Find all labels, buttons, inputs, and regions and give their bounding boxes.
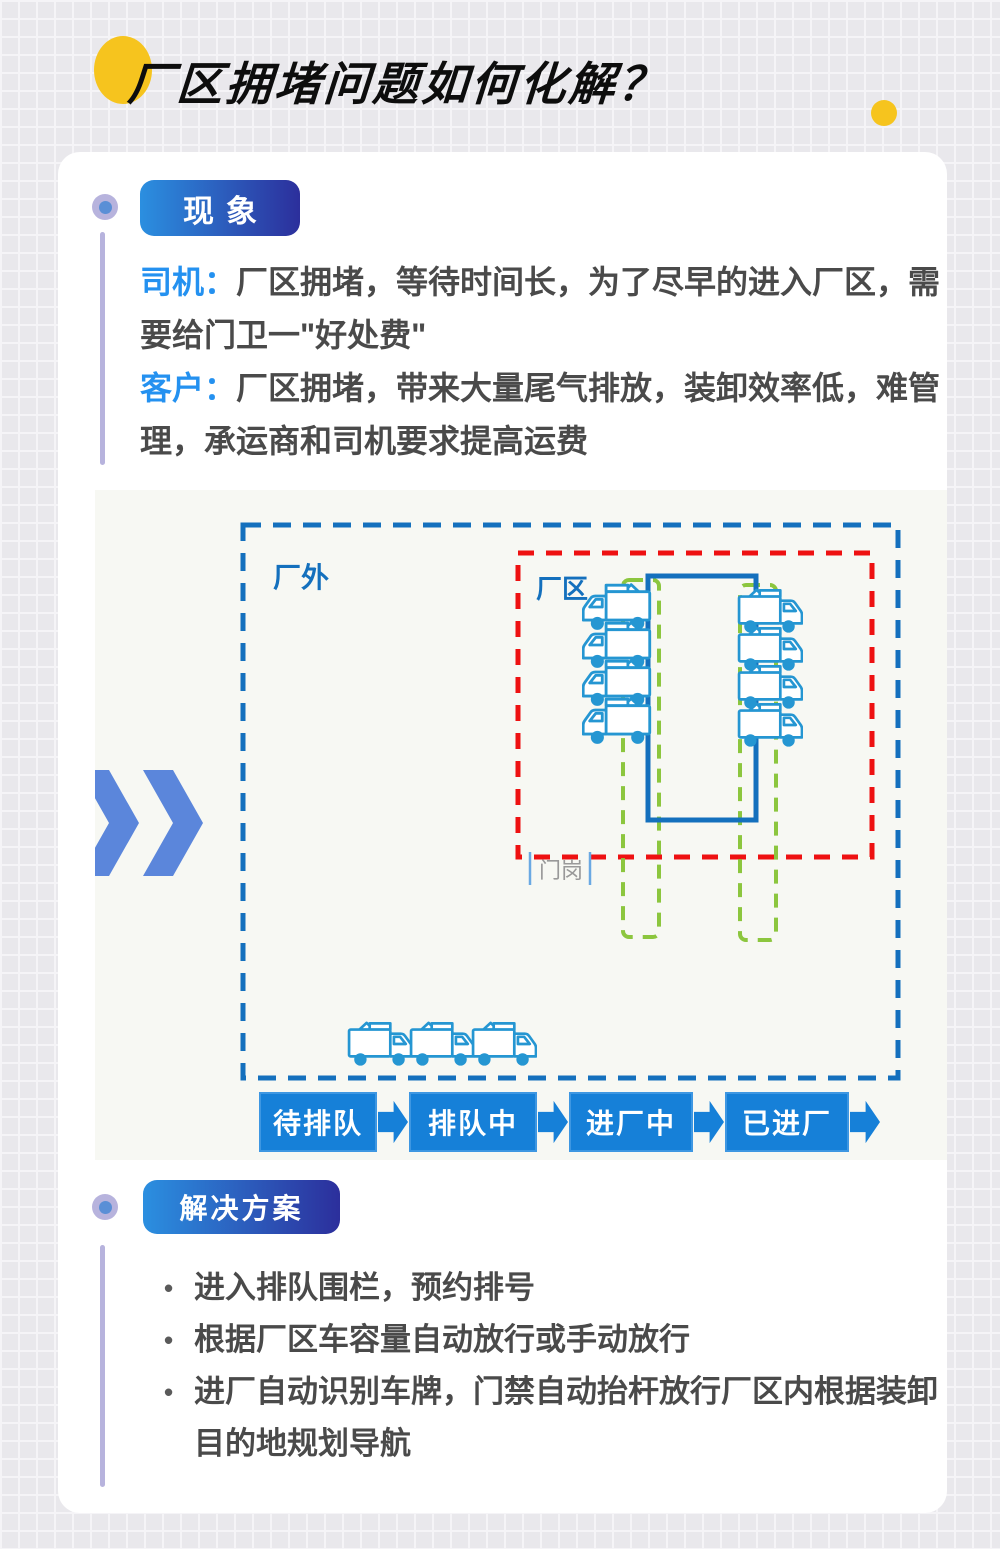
queue-status-flow: 待排队 排队中 进厂中 已进厂 (259, 1092, 881, 1152)
solution-item: 进厂自动识别车牌，门禁自动抬杆放行厂区内根据装卸目的地规划导航 (158, 1366, 938, 1470)
phenomenon-text: 司机：厂区拥堵，等待时间长，为了尽早的进入厂区，需要给门卫一"好处费" 客户：厂… (140, 256, 946, 468)
section-line (100, 232, 105, 465)
customer-label: 客户： (140, 370, 236, 406)
section-bullet-marker (92, 1194, 118, 1220)
waiting-trucks-queue (349, 1023, 536, 1066)
arrow-right-icon (378, 1099, 408, 1145)
bullet-inner-dot (99, 201, 112, 214)
outside-area-label: 厂外 (273, 562, 329, 593)
gate-post-label: 门岗 (539, 858, 583, 883)
content-card: 现象 司机：厂区拥堵，等待时间长，为了尽早的进入厂区，需要给门卫一"好处费" 客… (58, 152, 947, 1513)
solution-badge: 解决方案 (143, 1180, 340, 1234)
arrow-right-icon (538, 1099, 568, 1145)
flow-step-entering: 进厂中 (569, 1092, 693, 1152)
factory-diagram: 厂外 厂区 (95, 490, 947, 1160)
section-line (100, 1245, 105, 1487)
driver-complaint: 司机：厂区拥堵，等待时间长，为了尽早的进入厂区，需要给门卫一"好处费" (140, 256, 946, 362)
docked-trucks-right (739, 590, 802, 747)
customer-complaint: 客户：厂区拥堵，带来大量尾气排放，装卸效率低，难管理，承运商和司机要求提高运费 (140, 362, 946, 468)
chevron-right-icon (95, 770, 203, 876)
bullet-inner-dot (99, 1201, 112, 1214)
driver-label: 司机： (140, 264, 236, 300)
section-bullet-marker (92, 194, 118, 220)
yellow-dot-decoration (871, 100, 897, 126)
solution-item: 根据厂区车容量自动放行或手动放行 (158, 1314, 938, 1366)
arrow-right-icon (850, 1099, 880, 1145)
phenomenon-badge: 现象 (140, 180, 300, 236)
docked-trucks-left (583, 585, 650, 744)
solution-item: 进入排队围栏，预约排号 (158, 1262, 938, 1314)
page-title: 厂区拥堵问题如何化解？ (126, 48, 670, 114)
flow-step-waiting: 待排队 (259, 1092, 377, 1152)
factory-diagram-panel: 厂外 厂区 (95, 490, 947, 1160)
infographic-page: 厂区拥堵问题如何化解？ 现象 司机：厂区拥堵，等待时间长，为了尽早的进入厂区，需… (0, 0, 1000, 1549)
flow-step-queuing: 排队中 (409, 1092, 537, 1152)
customer-text: 厂区拥堵，带来大量尾气排放，装卸效率低，难管理，承运商和司机要求提高运费 (140, 370, 940, 459)
arrow-right-icon (694, 1099, 724, 1145)
solution-list: 进入排队围栏，预约排号 根据厂区车容量自动放行或手动放行 进厂自动识别车牌，门禁… (158, 1262, 938, 1470)
driver-text: 厂区拥堵，等待时间长，为了尽早的进入厂区，需要给门卫一"好处费" (140, 264, 940, 353)
flow-step-entered: 已进厂 (725, 1092, 849, 1152)
factory-area-label: 厂区 (536, 574, 588, 604)
